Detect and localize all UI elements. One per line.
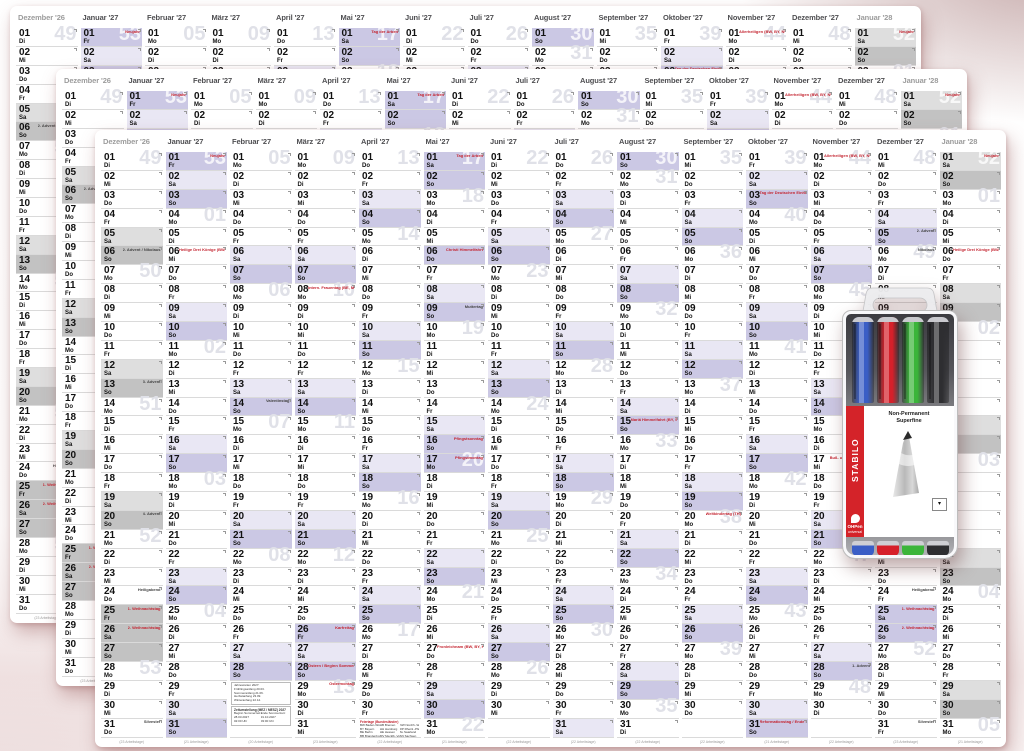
day-cell: 27So bbox=[101, 643, 163, 662]
weekday-label: Mi bbox=[104, 711, 163, 718]
corner-tick-icon bbox=[610, 266, 613, 269]
day-cell: 23Di bbox=[295, 568, 357, 587]
weekday-label: Mi bbox=[298, 597, 357, 604]
day-number: 14 bbox=[620, 399, 679, 409]
corner-tick-icon bbox=[417, 531, 420, 534]
weekday-label: Di bbox=[620, 201, 679, 208]
weekday-label: Fr bbox=[169, 427, 228, 434]
day-number: 12 bbox=[556, 361, 615, 371]
day-cell: 18So bbox=[359, 473, 421, 492]
corner-tick-icon bbox=[352, 399, 355, 402]
day-number: 24 bbox=[169, 587, 228, 597]
day-cell: 0901Mo bbox=[210, 28, 272, 47]
day-cell: 02Di bbox=[772, 110, 834, 129]
day-number: 21 bbox=[491, 531, 550, 541]
corner-tick-icon bbox=[288, 625, 291, 628]
weekday-label: Do bbox=[491, 201, 550, 208]
weekday-label: Di bbox=[233, 446, 292, 453]
corner-tick-icon bbox=[249, 92, 252, 95]
corner-tick-icon bbox=[636, 111, 639, 114]
day-cell: 02Do bbox=[790, 47, 852, 66]
weekday-label: Do bbox=[362, 295, 421, 302]
day-number: 27 bbox=[362, 644, 421, 654]
weekday-label: Di bbox=[620, 597, 679, 604]
day-cell: 06Fr bbox=[617, 246, 679, 265]
workdays-footer: (22 Arbeitstage) bbox=[553, 738, 615, 746]
weekday-label: So bbox=[169, 597, 228, 604]
weekday-label: Di bbox=[452, 102, 511, 109]
day-cell: 07Fr bbox=[424, 265, 486, 284]
day-number: 02 bbox=[729, 48, 788, 58]
day-cell: 02Di bbox=[230, 171, 292, 190]
weekday-label: Sa bbox=[556, 465, 615, 472]
day-cell: 1301Do bbox=[359, 152, 421, 171]
corner-tick-icon bbox=[288, 663, 291, 666]
holiday-note: Karfreitag bbox=[335, 626, 354, 631]
day-number: 09 bbox=[169, 304, 228, 314]
corner-tick-icon bbox=[288, 493, 291, 496]
day-number: 16 bbox=[298, 436, 357, 446]
corner-tick-icon bbox=[288, 229, 291, 232]
corner-tick-icon bbox=[417, 569, 420, 572]
day-cell: 11So bbox=[553, 341, 615, 360]
day-number: 10 bbox=[298, 323, 357, 333]
day-number: 03 bbox=[362, 191, 421, 201]
day-cell: 29Di bbox=[488, 681, 550, 700]
day-cell: 31DoSilvester bbox=[101, 719, 163, 738]
holiday-note: Intern. Frauentag (BE, MV) bbox=[308, 286, 354, 291]
weekday-label: Mo bbox=[104, 276, 163, 283]
day-cell: 05Do bbox=[617, 228, 679, 247]
day-number: 19 bbox=[104, 493, 163, 503]
weekday-label: Mo bbox=[259, 102, 318, 109]
weekday-label: Mi bbox=[620, 220, 679, 227]
corner-tick-icon bbox=[546, 191, 549, 194]
day-number: 11 bbox=[620, 342, 679, 352]
corner-tick-icon bbox=[74, 29, 77, 32]
weekday-label: Di bbox=[620, 333, 679, 340]
day-number: 15 bbox=[104, 417, 163, 427]
empty-cell bbox=[488, 719, 550, 738]
day-cell: 16Mi bbox=[101, 435, 163, 454]
weekday-label: So bbox=[858, 58, 917, 65]
day-cell: 14Do bbox=[166, 398, 228, 417]
corner-tick-icon bbox=[417, 606, 420, 609]
weekday-label: Mi bbox=[620, 352, 679, 359]
weekday-label: Mo bbox=[556, 635, 615, 642]
corner-tick-icon bbox=[610, 210, 613, 213]
day-cell: 25Di bbox=[424, 605, 486, 624]
day-cell: 2601Do bbox=[468, 28, 530, 47]
day-number: 17 bbox=[362, 455, 421, 465]
corner-tick-icon bbox=[546, 531, 549, 534]
corner-tick-icon bbox=[481, 550, 484, 553]
day-number: 01 bbox=[664, 29, 723, 39]
day-cell: 22Di bbox=[101, 549, 163, 568]
day-number: 28 bbox=[233, 663, 292, 673]
day-cell: 3102Mo bbox=[532, 47, 594, 66]
day-number: 02 bbox=[194, 111, 253, 121]
day-cell: 09Fr bbox=[553, 303, 615, 322]
corner-tick-icon bbox=[417, 644, 420, 647]
day-cell: 26Mi bbox=[424, 624, 486, 643]
corner-tick-icon bbox=[848, 29, 851, 32]
workdays-footer: (22 Arbeitstage) bbox=[488, 738, 550, 746]
day-number: 16 bbox=[556, 436, 615, 446]
weekday-label: So bbox=[620, 560, 679, 567]
day-cell: 21Sa bbox=[617, 530, 679, 549]
day-cell: 27Sa bbox=[230, 643, 292, 662]
day-number: 30 bbox=[362, 701, 421, 711]
weekday-label: Mo bbox=[104, 673, 163, 680]
weekday-label: Di bbox=[233, 579, 292, 586]
day-number: 06 bbox=[556, 247, 615, 257]
day-cell: 1329MoOstermontag bbox=[295, 681, 357, 700]
corner-tick-icon bbox=[223, 550, 226, 553]
weekday-label: So bbox=[362, 616, 421, 623]
weekday-label: Fr bbox=[517, 121, 576, 128]
day-number: 07 bbox=[427, 266, 486, 276]
corner-tick-icon bbox=[481, 531, 484, 534]
corner-tick-icon bbox=[352, 247, 355, 250]
corner-tick-icon bbox=[267, 29, 270, 32]
workdays-footer: (20 Arbeitstage) bbox=[230, 738, 292, 746]
corner-tick-icon bbox=[159, 436, 162, 439]
day-cell: 0104Mo bbox=[166, 209, 228, 228]
states-column: NW Nordrh.-Westf.RP Rheinl.-PfalzSL Saar… bbox=[400, 724, 420, 738]
day-cell: 28SoOstern / Beginn Sommerzeit bbox=[295, 662, 357, 681]
weekday-label: So bbox=[233, 673, 292, 680]
day-cell: 02Di bbox=[191, 110, 253, 129]
corner-tick-icon bbox=[332, 48, 335, 51]
day-cell: 02Sa bbox=[661, 47, 723, 66]
weekday-label: Mo bbox=[233, 295, 292, 302]
weekday-label: Mi bbox=[104, 182, 163, 189]
day-cell: 02Di bbox=[256, 110, 318, 129]
corner-tick-icon bbox=[352, 380, 355, 383]
month-column: April '271301Do02Fr03Sa04So1405Mo06Di07M… bbox=[359, 130, 421, 747]
corner-tick-icon bbox=[249, 111, 252, 114]
weekday-label: Sa bbox=[130, 121, 189, 128]
day-number: 07 bbox=[104, 266, 163, 276]
day-number: 02 bbox=[581, 111, 640, 121]
corner-tick-icon bbox=[159, 550, 162, 553]
corner-tick-icon bbox=[481, 266, 484, 269]
day-number: 22 bbox=[104, 550, 163, 560]
weekday-label: Di bbox=[194, 121, 253, 128]
corner-tick-icon bbox=[417, 304, 420, 307]
day-cell: 18So bbox=[553, 473, 615, 492]
day-cell: 0211Mo bbox=[166, 341, 228, 360]
day-number: 31 bbox=[556, 720, 615, 730]
weekday-label: Mi bbox=[65, 121, 124, 128]
weekday-label: Sa bbox=[620, 541, 679, 548]
day-cell: 02Do bbox=[597, 47, 659, 66]
day-number: 29 bbox=[491, 682, 550, 692]
day-number: 21 bbox=[427, 531, 486, 541]
day-cell: 08Sa bbox=[424, 284, 486, 303]
day-number: 08 bbox=[233, 285, 292, 295]
day-number: 13 bbox=[556, 380, 615, 390]
weekday-label: Mi bbox=[646, 102, 705, 109]
corner-tick-icon bbox=[507, 111, 510, 114]
corner-tick-icon bbox=[675, 380, 678, 383]
day-number: 02 bbox=[213, 48, 272, 58]
corner-tick-icon bbox=[417, 247, 420, 250]
day-cell: 20Di bbox=[359, 511, 421, 530]
corner-tick-icon bbox=[288, 606, 291, 609]
day-cell: 19Sa bbox=[101, 492, 163, 511]
day-cell: 12Mi bbox=[424, 360, 486, 379]
corner-tick-icon bbox=[765, 92, 768, 95]
weekday-label: Mi bbox=[427, 239, 486, 246]
corner-tick-icon bbox=[159, 210, 162, 213]
day-cell: 1222Mo bbox=[295, 549, 357, 568]
corner-tick-icon bbox=[417, 229, 420, 232]
corner-tick-icon bbox=[525, 29, 528, 32]
weekday-label: Do bbox=[104, 201, 163, 208]
weekday-label: Mi bbox=[427, 635, 486, 642]
day-number: 01 bbox=[298, 153, 357, 163]
corner-tick-icon bbox=[184, 111, 187, 114]
weekday-label: Sa bbox=[362, 201, 421, 208]
day-number: 28 bbox=[362, 663, 421, 673]
day-cell: 24Di bbox=[617, 586, 679, 605]
weekday-label: Mo bbox=[491, 541, 550, 548]
day-number: 05 bbox=[620, 229, 679, 239]
day-cell: 0715Mo bbox=[230, 416, 292, 435]
day-cell: 04Mi bbox=[617, 209, 679, 228]
day-cell: 5114Mo bbox=[101, 398, 163, 417]
dst-column: Beginn Sommerzeit:28.03.202702:00 Uhr bbox=[234, 712, 261, 723]
day-cell: 20So bbox=[488, 511, 550, 530]
corner-tick-icon bbox=[546, 229, 549, 232]
corner-tick-icon bbox=[675, 531, 678, 534]
weekday-label: So bbox=[427, 579, 486, 586]
weekday-label: Do bbox=[646, 121, 705, 128]
day-number: 12 bbox=[233, 361, 292, 371]
day-number: 04 bbox=[427, 210, 486, 220]
day-cell: 23Di bbox=[230, 568, 292, 587]
weekday-label: Fr bbox=[556, 711, 615, 718]
day-number: 07 bbox=[233, 266, 292, 276]
day-number: 22 bbox=[233, 550, 292, 560]
weekday-label: So bbox=[620, 427, 679, 434]
corner-tick-icon bbox=[610, 625, 613, 628]
holiday-note: Tag der Arbeit bbox=[371, 30, 398, 35]
day-number: 02 bbox=[620, 172, 679, 182]
day-number: 11 bbox=[298, 342, 357, 352]
weekday-label: Di bbox=[104, 163, 163, 170]
day-number: 02 bbox=[388, 111, 447, 121]
corner-tick-icon bbox=[481, 342, 484, 345]
corner-tick-icon bbox=[610, 399, 613, 402]
day-number: 22 bbox=[491, 550, 550, 560]
day-cell: 29Do bbox=[553, 681, 615, 700]
holiday-note: Christi Himmelfahrt bbox=[446, 248, 483, 253]
day-number: 25 bbox=[427, 606, 486, 616]
day-cell: 02So bbox=[901, 110, 963, 129]
corner-tick-icon bbox=[783, 48, 786, 51]
day-cell: 07So bbox=[230, 265, 292, 284]
day-number: 30 bbox=[298, 701, 357, 711]
weekday-label: So bbox=[620, 295, 679, 302]
corner-tick-icon bbox=[223, 512, 226, 515]
day-cell: 02Mi bbox=[16, 47, 78, 66]
weekday-label: Mi bbox=[452, 121, 511, 128]
corner-tick-icon bbox=[223, 417, 226, 420]
weekday-label: Sa bbox=[427, 692, 486, 699]
day-number: 04 bbox=[298, 210, 357, 220]
weekday-label: Do bbox=[233, 616, 292, 623]
weekday-label: Sa bbox=[904, 102, 963, 109]
day-cell: 5221Mo bbox=[101, 530, 163, 549]
day-cell: 07Mi bbox=[553, 265, 615, 284]
weekday-label: Mi bbox=[491, 579, 550, 586]
day-cell: 30Fr bbox=[553, 700, 615, 719]
day-cell: 27Mi bbox=[166, 643, 228, 662]
day-cell: 07Sa bbox=[617, 265, 679, 284]
weekday-label: Mi bbox=[556, 541, 615, 548]
day-cell: 09Mi bbox=[488, 303, 550, 322]
day-number: 19 bbox=[427, 493, 486, 503]
day-number: 12 bbox=[169, 361, 228, 371]
day-cell: 5201SaNeujahr bbox=[855, 28, 917, 47]
weekday-label: Do bbox=[323, 102, 382, 109]
corner-tick-icon bbox=[352, 210, 355, 213]
day-number: 02 bbox=[710, 111, 769, 121]
weekday-label: So bbox=[298, 541, 357, 548]
weekday-label: Fr bbox=[491, 220, 550, 227]
corner-tick-icon bbox=[546, 285, 549, 288]
day-cell: 21Fr bbox=[424, 530, 486, 549]
weekday-label: Di bbox=[233, 314, 292, 321]
day-cell: 11Fr bbox=[101, 341, 163, 360]
day-cell: 17Do bbox=[101, 454, 163, 473]
weekday-label: Di bbox=[556, 654, 615, 661]
weekday-label: Do bbox=[427, 257, 486, 264]
weekday-label: Fr bbox=[620, 390, 679, 397]
weekday-label: Mi bbox=[839, 102, 898, 109]
weekday-label: Sa bbox=[233, 522, 292, 529]
day-number: 27 bbox=[104, 644, 163, 654]
corner-tick-icon bbox=[288, 644, 291, 647]
day-cell: 2017MoPfingstmontag bbox=[424, 454, 486, 473]
corner-tick-icon bbox=[417, 587, 420, 590]
corner-tick-icon bbox=[223, 569, 226, 572]
weekday-label: Fr bbox=[298, 503, 357, 510]
corner-tick-icon bbox=[223, 399, 226, 402]
day-number: 05 bbox=[556, 229, 615, 239]
day-number: 27 bbox=[491, 644, 550, 654]
day-cell: 15SoMariä Himmelfahrt (BY, SL) bbox=[617, 416, 679, 435]
corner-tick-icon bbox=[223, 682, 226, 685]
day-cell: 5301FrNeujahr bbox=[127, 91, 189, 110]
day-cell: 18Di bbox=[424, 473, 486, 492]
day-cell: 2414Mo bbox=[488, 398, 550, 417]
weekday-label: Fr bbox=[491, 616, 550, 623]
day-number: 17 bbox=[104, 455, 163, 465]
weekday-label: Di bbox=[556, 257, 615, 264]
corner-tick-icon bbox=[288, 304, 291, 307]
day-number: 17 bbox=[233, 455, 292, 465]
day-cell: 1726Mo bbox=[359, 624, 421, 643]
holiday-note: Mariä Himmelfahrt (BY, SL) bbox=[631, 418, 677, 423]
day-number: 16 bbox=[491, 436, 550, 446]
weekday-label: Sa bbox=[427, 163, 486, 170]
corner-tick-icon bbox=[223, 663, 226, 666]
day-number: 01 bbox=[491, 153, 550, 163]
weekday-label: Sa bbox=[556, 597, 615, 604]
day-number: 04 bbox=[556, 210, 615, 220]
day-number: 08 bbox=[104, 285, 163, 295]
day-cell: 3026Mo bbox=[553, 624, 615, 643]
day-cell: 12Fr bbox=[230, 360, 292, 379]
corner-tick-icon bbox=[138, 48, 141, 51]
day-number: 07 bbox=[169, 266, 228, 276]
day-number: 08 bbox=[556, 285, 615, 295]
weekday-label: Mo bbox=[620, 446, 679, 453]
corner-tick-icon bbox=[223, 606, 226, 609]
day-number: 02 bbox=[775, 111, 834, 121]
corner-tick-icon bbox=[352, 606, 355, 609]
corner-tick-icon bbox=[675, 153, 678, 156]
day-number: 06 bbox=[620, 247, 679, 257]
weekday-label: Sa bbox=[427, 427, 486, 434]
weekday-label: Di bbox=[775, 121, 834, 128]
day-cell: 27Sa bbox=[295, 643, 357, 662]
day-cell: 02Mi bbox=[62, 110, 124, 129]
day-number: 12 bbox=[298, 361, 357, 371]
day-number: 02 bbox=[277, 48, 336, 58]
weekday-label: Di bbox=[427, 220, 486, 227]
day-cell: 3901Fr bbox=[707, 91, 769, 110]
day-cell: 02So bbox=[339, 47, 401, 66]
weekday-label: Do bbox=[362, 560, 421, 567]
weekday-label: So bbox=[427, 446, 486, 453]
day-number: 20 bbox=[169, 512, 228, 522]
holiday-note: Neujahr bbox=[125, 30, 140, 35]
weekday-label: Sa bbox=[556, 201, 615, 208]
day-number: 08 bbox=[169, 285, 228, 295]
corner-tick-icon bbox=[610, 455, 613, 458]
corner-tick-icon bbox=[546, 380, 549, 383]
month-column: Juni '272201Di02Mi03Do04Fr05Sa06So2307Mo… bbox=[488, 130, 550, 747]
day-cell: 26Fr bbox=[230, 624, 292, 643]
corner-tick-icon bbox=[894, 111, 897, 114]
day-number: 27 bbox=[169, 644, 228, 654]
day-cell: 20Fr bbox=[617, 511, 679, 530]
corner-tick-icon bbox=[481, 417, 484, 420]
weekday-label: Sa bbox=[104, 635, 163, 642]
day-cell: 27So bbox=[488, 643, 550, 662]
corner-tick-icon bbox=[481, 380, 484, 383]
weekday-label: Mo bbox=[362, 239, 421, 246]
weekday-label: Mo bbox=[620, 314, 679, 321]
weekday-label: Mo bbox=[362, 635, 421, 642]
corner-tick-icon bbox=[546, 399, 549, 402]
day-number: 13 bbox=[298, 380, 357, 390]
corner-tick-icon bbox=[223, 285, 226, 288]
day-cell: 14Mi bbox=[553, 398, 615, 417]
corner-tick-icon bbox=[120, 92, 123, 95]
weekday-label: So bbox=[362, 484, 421, 491]
day-number: 14 bbox=[362, 399, 421, 409]
day-cell: 23Fr bbox=[553, 568, 615, 587]
day-number: 02 bbox=[452, 111, 511, 121]
weekday-label: Mo bbox=[104, 541, 163, 548]
weekday-label: Mi bbox=[169, 654, 228, 661]
